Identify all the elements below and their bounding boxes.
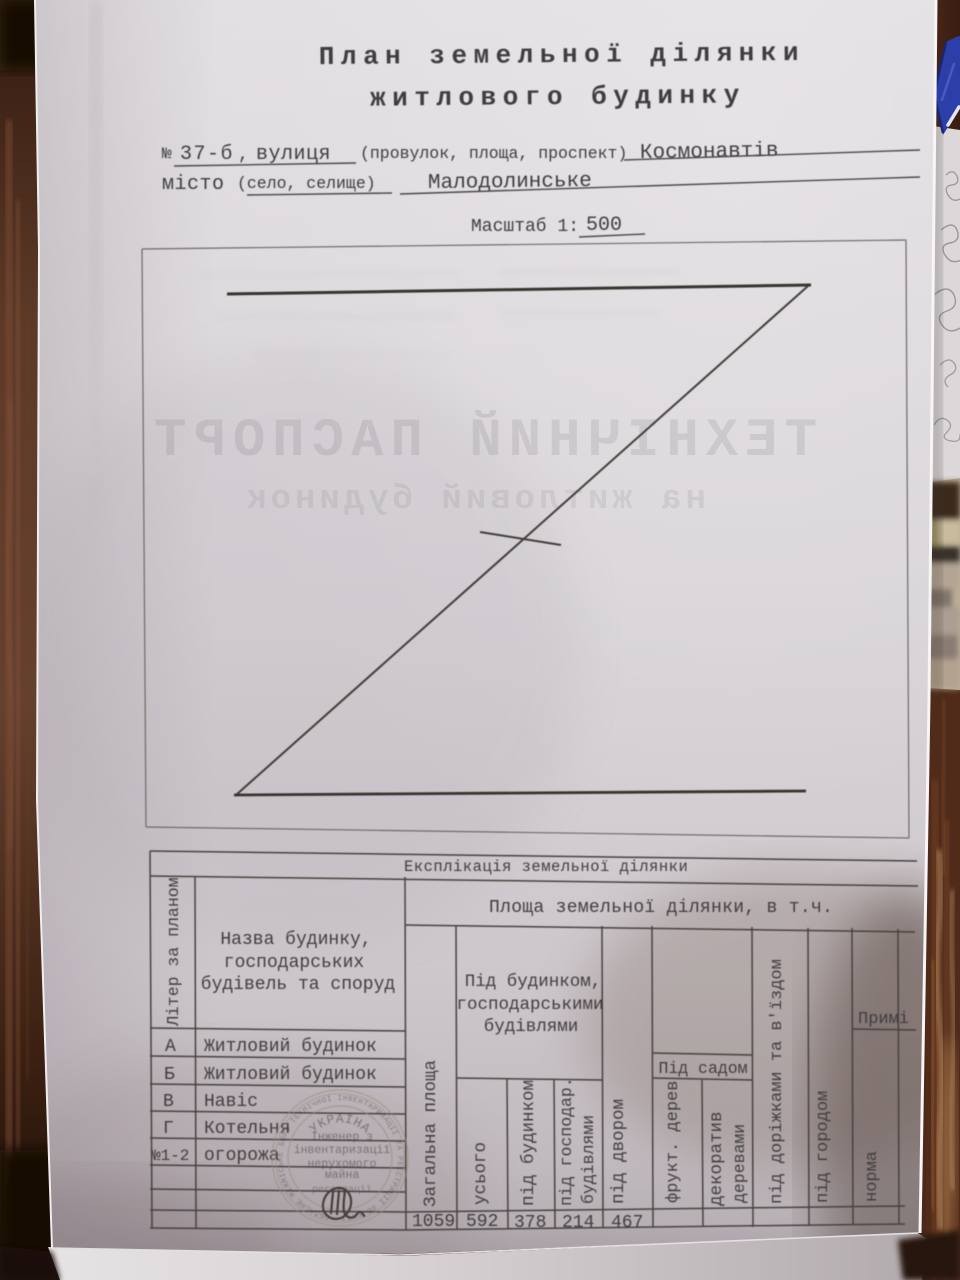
svg-text:під двором: під двором — [609, 1099, 629, 1204]
svg-text:Інженер з: Інженер з — [311, 1131, 373, 1144]
svg-text:214: 214 — [562, 1213, 594, 1233]
svg-text:Г: Г — [163, 1119, 174, 1139]
svg-text:на житловий будинок: на житловий будинок — [242, 481, 706, 519]
svg-text:реєстрації: реєстрації — [312, 1184, 372, 1196]
svg-text:Експлікація земельної ділянки: Експлікація земельної ділянки — [404, 858, 688, 876]
svg-text:378: 378 — [514, 1213, 546, 1233]
svg-text:будівель та споруд: будівель та споруд — [201, 974, 396, 995]
svg-text:деревами: деревами — [730, 1124, 749, 1203]
svg-text:норма: норма — [863, 1151, 882, 1202]
svg-text:592: 592 — [466, 1212, 498, 1232]
svg-text:Котельня: Котельня — [204, 1119, 290, 1139]
svg-text:№1-2: №1-2 — [151, 1147, 189, 1165]
svg-text:декоратив: декоратив — [707, 1111, 727, 1206]
svg-text:(провулок, площа, проспект): (провулок, площа, проспект) — [360, 144, 627, 163]
svg-text:,: , — [238, 145, 249, 165]
svg-text:Площа земельної ділянки, в т.ч: Площа земельної ділянки, в т.ч. — [489, 898, 833, 918]
svg-text:1059: 1059 — [412, 1212, 455, 1232]
svg-text:ТЕХНІЧНИЙ ПАСПОРТ: ТЕХНІЧНИЙ ПАСПОРТ — [147, 410, 817, 472]
svg-text:Загальна площа: Загальна площа — [421, 1060, 441, 1207]
svg-text:План земельної ділянки: План земельної ділянки — [319, 38, 806, 72]
svg-text:фрукт. дерев: фрукт. дерев — [664, 1081, 683, 1203]
svg-text:місто: місто — [162, 173, 225, 196]
svg-text:Назва будинку,: Назва будинку, — [220, 929, 371, 950]
svg-text:господарськими: господарськими — [456, 995, 603, 1015]
svg-text:Малодолинське: Малодолинське — [428, 170, 592, 195]
svg-text:під будинком: під будинком — [519, 1080, 539, 1206]
svg-text:37-б: 37-б — [180, 143, 234, 166]
svg-text:№: № — [162, 145, 172, 163]
svg-text:усього: усього — [471, 1142, 491, 1205]
svg-text:будівлями: будівлями — [484, 1017, 579, 1037]
svg-text:господарських: господарських — [224, 953, 364, 973]
svg-text:Космонавтів: Космонавтів — [640, 140, 779, 165]
svg-text:огорожа: огорожа — [204, 1146, 280, 1166]
svg-text:Житловий будинок: Житловий будинок — [204, 1064, 377, 1085]
svg-text:Літер за планом: Літер за планом — [164, 877, 183, 1027]
svg-text:житлового будинку: житлового будинку — [370, 80, 746, 113]
svg-text:(село, селище): (село, селище) — [237, 174, 376, 193]
svg-text:майна: майна — [325, 1169, 360, 1182]
svg-text:В: В — [163, 1092, 174, 1112]
svg-text:467: 467 — [611, 1213, 643, 1233]
svg-text:Під садом: Під садом — [658, 1059, 747, 1078]
svg-text:Під будинком,: Під будинком, — [465, 972, 602, 992]
svg-text:500: 500 — [586, 214, 622, 237]
svg-text:інвентаризації: інвентаризації — [294, 1144, 391, 1157]
svg-text:Масштаб 1:: Масштаб 1: — [471, 216, 579, 237]
svg-text:Навіс: Навіс — [204, 1092, 258, 1112]
svg-text:Б: Б — [164, 1065, 175, 1085]
svg-text:А: А — [165, 1037, 176, 1057]
svg-text:під городом: під городом — [814, 1091, 833, 1203]
svg-text:будівлями: будівлями — [579, 1115, 598, 1204]
svg-text:Житловий будинок: Житловий будинок — [204, 1036, 377, 1057]
svg-text:під господар.: під господар. — [557, 1077, 576, 1206]
svg-text:під доріжками та в'їздом: під доріжками та в'їздом — [768, 959, 787, 1204]
svg-text:вулиця: вулиця — [256, 143, 331, 166]
svg-text:Примі: Примі — [858, 1010, 909, 1029]
